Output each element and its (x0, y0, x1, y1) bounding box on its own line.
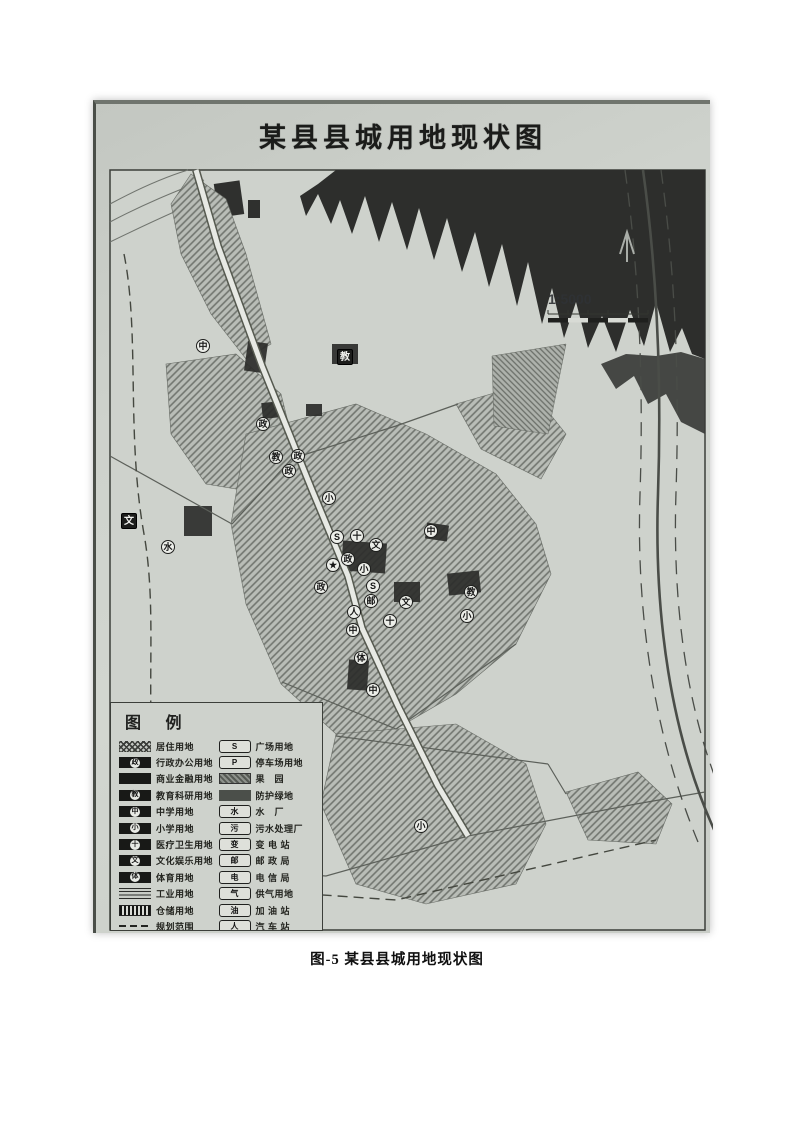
facility-marker-中: 中 (346, 623, 360, 637)
legend-item: 中中学用地 (119, 804, 219, 820)
facility-marker-文: 文 (399, 595, 413, 609)
legend-item: 政行政办公用地 (119, 754, 219, 770)
legend-label: 防护绿地 (256, 789, 294, 802)
legend-item: 十医疗卫生用地 (119, 836, 219, 852)
legend-label: 教育科研用地 (156, 789, 213, 802)
legend-swatch-black-badge: 十 (119, 839, 151, 850)
legend-item: 果 园 (219, 771, 322, 787)
facility-marker-文: 文 (369, 538, 383, 552)
facility-marker-★: ★ (326, 558, 340, 572)
facility-marker-水: 水 (161, 540, 175, 554)
legend-item: 变变 电 站 (219, 836, 322, 852)
facility-marker-政: 政 (282, 464, 296, 478)
legend-item: 居住用地 (119, 738, 219, 754)
facility-marker-政: 政 (256, 417, 270, 431)
legend-item: 规划范围 (119, 918, 219, 931)
legend-label: 中学用地 (156, 805, 194, 818)
legend-label: 工业用地 (156, 887, 194, 900)
legend-label: 变 电 站 (256, 838, 291, 851)
facility-marker-十: 十 (350, 529, 364, 543)
facility-marker-十: 十 (383, 614, 397, 628)
legend-swatch-solid-black (119, 773, 151, 784)
legend-swatch-black-badge: 体 (119, 872, 151, 883)
facility-marker-政: 政 (291, 449, 305, 463)
legend-label: 电 信 局 (256, 871, 291, 884)
facility-marker-教: 教 (337, 349, 353, 365)
legend-swatch-white-box: P (219, 756, 251, 769)
legend-item: 水水 厂 (219, 804, 322, 820)
legend-label: 广场用地 (256, 740, 294, 753)
facility-marker-体: 体 (354, 651, 368, 665)
legend-label: 污水处理厂 (256, 822, 304, 835)
figure-caption: 图-5 某县县城用地现状图 (0, 948, 794, 969)
legend-item: 商业金融用地 (119, 771, 219, 787)
legend-swatch-white-box: 人 (219, 920, 251, 931)
facility-marker-小: 小 (357, 562, 371, 576)
facility-marker-小: 小 (322, 491, 336, 505)
legend-swatch-white-box: 气 (219, 887, 251, 900)
legend-item: P停车场用地 (219, 754, 322, 770)
legend-label: 停车场用地 (256, 756, 304, 769)
legend-swatch-white-box: 油 (219, 904, 251, 917)
legend-swatch-black-badge: 政 (119, 757, 151, 768)
map-legend: 图 例 居住用地政行政办公用地商业金融用地教教育科研用地中中学用地小小学用地十医… (110, 702, 323, 931)
legend-item: 气供气用地 (219, 886, 322, 902)
facility-marker-小: 小 (460, 609, 474, 623)
facility-marker-S: S (366, 579, 380, 593)
legend-swatch-black-badge: 教 (119, 790, 151, 801)
legend-swatch-white-box: 变 (219, 838, 251, 851)
legend-label: 医疗卫生用地 (156, 838, 213, 851)
legend-item: 体体育用地 (119, 869, 219, 885)
legend-label: 规划范围 (156, 920, 194, 931)
legend-swatch-hatch-vert (119, 905, 151, 916)
facility-marker-中: 中 (424, 524, 438, 538)
facility-marker-教: 教 (464, 585, 478, 599)
facility-marker-邮: 邮 (364, 594, 378, 608)
legend-right-column: S广场用地P停车场用地果 园防护绿地水水 厂污污水处理厂变变 电 站邮邮 政 局… (219, 738, 322, 931)
legend-item: 教教育科研用地 (119, 787, 219, 803)
legend-label: 商业金融用地 (156, 772, 213, 785)
legend-swatch-white-box: 污 (219, 822, 251, 835)
facility-marker-中: 中 (196, 339, 210, 353)
legend-title: 图 例 (125, 709, 322, 733)
legend-swatch-hatch-horiz (119, 888, 151, 899)
legend-label: 果 园 (256, 772, 285, 785)
facility-marker-政: 政 (314, 580, 328, 594)
facility-marker-S: S (330, 530, 344, 544)
legend-swatch-hatch-cross (119, 741, 151, 752)
legend-label: 体育用地 (156, 871, 194, 884)
legend-item: 人汽 车 站 (219, 918, 322, 931)
map-photo: 1:5000 某县县城用地现状图 中教政教政政小文水中S十文政★小政S邮文人教小… (93, 100, 710, 933)
facility-marker-文: 文 (121, 513, 137, 529)
legend-item: S广场用地 (219, 738, 322, 754)
legend-label: 小学用地 (156, 822, 194, 835)
legend-label: 汽 车 站 (256, 920, 291, 931)
legend-swatch-hatch-dense (219, 773, 251, 784)
facility-marker-人: 人 (347, 605, 361, 619)
legend-swatch-solid-gray (219, 790, 251, 801)
legend-item: 小小学用地 (119, 820, 219, 836)
legend-swatch-white-box: S (219, 740, 251, 753)
legend-swatch-white-box: 水 (219, 805, 251, 818)
legend-item: 文文化娱乐用地 (119, 853, 219, 869)
legend-label: 居住用地 (156, 740, 194, 753)
legend-label: 水 厂 (256, 805, 285, 818)
legend-swatch-black-badge: 文 (119, 855, 151, 866)
legend-label: 仓储用地 (156, 904, 194, 917)
legend-item: 邮邮 政 局 (219, 853, 322, 869)
facility-marker-小: 小 (414, 819, 428, 833)
legend-label: 行政办公用地 (156, 756, 213, 769)
facility-marker-中: 中 (366, 683, 380, 697)
legend-swatch-white-box: 电 (219, 871, 251, 884)
facility-marker-教: 教 (269, 450, 283, 464)
legend-item: 工业用地 (119, 886, 219, 902)
legend-label: 文化娱乐用地 (156, 854, 213, 867)
facility-marker-政: 政 (341, 552, 355, 566)
legend-item: 电电 信 局 (219, 869, 322, 885)
legend-swatch-black-badge: 中 (119, 806, 151, 817)
legend-label: 加 油 站 (256, 904, 291, 917)
legend-item: 仓储用地 (119, 902, 219, 918)
legend-label: 邮 政 局 (256, 854, 291, 867)
legend-label: 供气用地 (256, 887, 294, 900)
legend-left-column: 居住用地政行政办公用地商业金融用地教教育科研用地中中学用地小小学用地十医疗卫生用… (119, 738, 219, 931)
legend-swatch-black-badge: 小 (119, 823, 151, 834)
legend-swatch-white-box: 邮 (219, 854, 251, 867)
legend-swatch-dash-line (119, 921, 151, 931)
legend-item: 油加 油 站 (219, 902, 322, 918)
legend-item: 污污水处理厂 (219, 820, 322, 836)
legend-item: 防护绿地 (219, 787, 322, 803)
